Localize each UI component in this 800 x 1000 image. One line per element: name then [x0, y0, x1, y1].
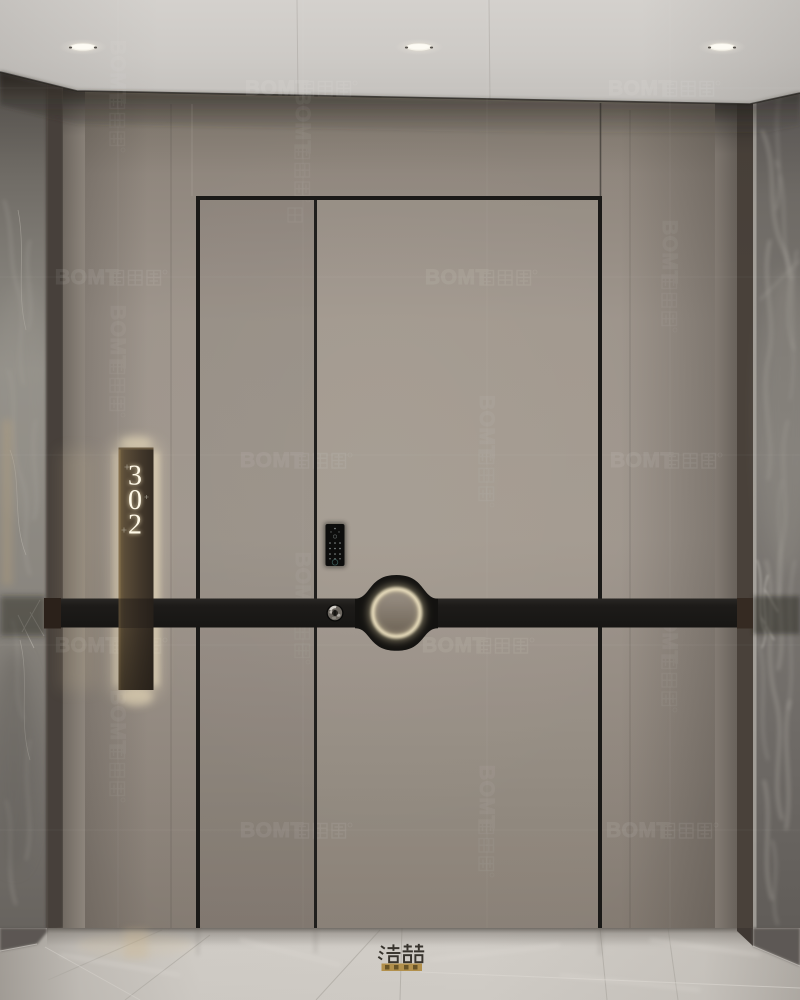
svg-text:2: 2	[128, 510, 142, 541]
